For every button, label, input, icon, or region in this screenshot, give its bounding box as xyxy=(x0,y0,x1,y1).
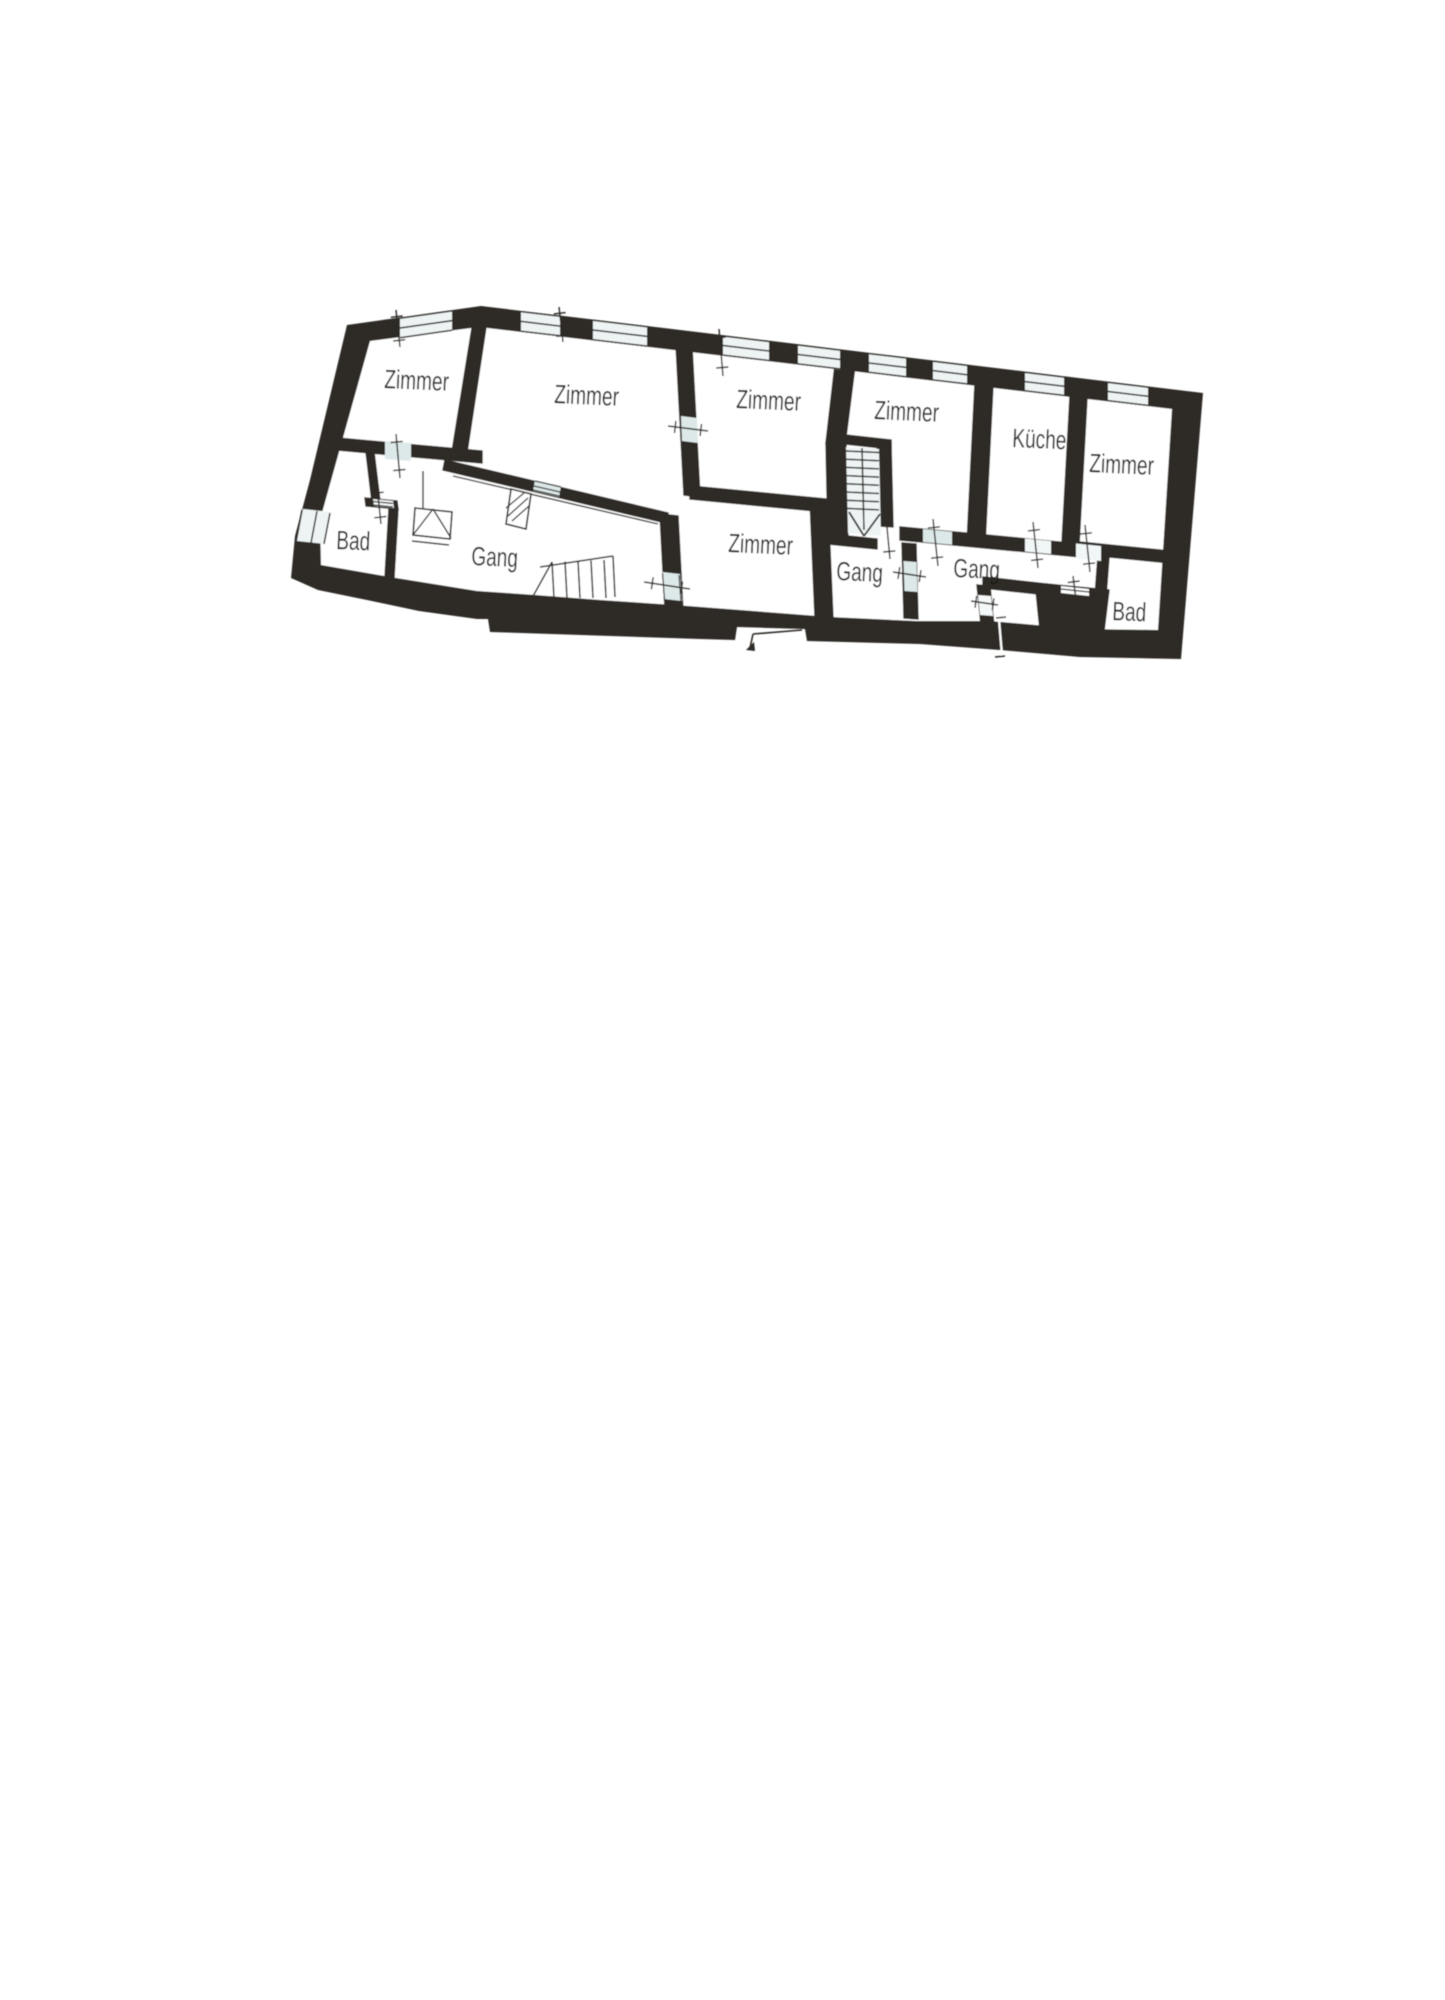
svg-text:Zimmer: Zimmer xyxy=(554,379,620,412)
svg-text:Küche: Küche xyxy=(1012,423,1067,455)
svg-text:Zimmer: Zimmer xyxy=(736,384,802,417)
svg-text:Gang: Gang xyxy=(953,553,1001,585)
svg-text:Bad: Bad xyxy=(336,525,371,556)
svg-text:Gang: Gang xyxy=(836,556,884,588)
svg-text:Zimmer: Zimmer xyxy=(874,395,940,428)
svg-text:Zimmer: Zimmer xyxy=(728,528,794,561)
svg-text:Gang: Gang xyxy=(471,541,519,573)
svg-text:Zimmer: Zimmer xyxy=(384,364,450,397)
svg-text:Bad: Bad xyxy=(1112,596,1147,627)
svg-text:Zimmer: Zimmer xyxy=(1089,448,1155,481)
